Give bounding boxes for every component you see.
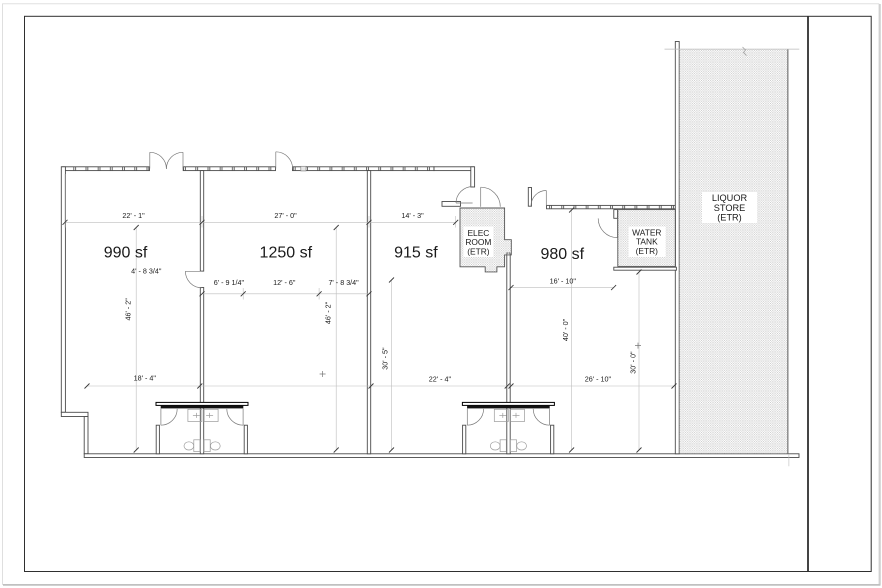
svg-text:LIQUOR: LIQUOR	[712, 193, 748, 203]
svg-text:30' - 0": 30' - 0"	[629, 351, 638, 374]
svg-text:4' - 8 3/4": 4' - 8 3/4"	[131, 267, 162, 276]
svg-text:(ETR): (ETR)	[636, 246, 659, 256]
svg-text:22' - 1": 22' - 1"	[122, 211, 145, 220]
svg-text:26' - 10": 26' - 10"	[585, 375, 612, 384]
svg-text:22' - 4": 22' - 4"	[429, 375, 452, 384]
svg-text:915 sf: 915 sf	[394, 245, 438, 262]
svg-text:30' - 5": 30' - 5"	[380, 347, 389, 370]
svg-text:46' - 2": 46' - 2"	[124, 298, 133, 321]
svg-text:6' - 9 1/4": 6' - 9 1/4"	[214, 278, 245, 287]
svg-text:12' - 6": 12' - 6"	[273, 278, 296, 287]
svg-text:990 sf: 990 sf	[104, 245, 148, 262]
svg-text:(ETR): (ETR)	[467, 247, 490, 257]
svg-text:7' - 8 3/4": 7' - 8 3/4"	[328, 278, 359, 287]
svg-text:18' - 4": 18' - 4"	[134, 374, 157, 383]
svg-text:46' - 2": 46' - 2"	[324, 301, 333, 324]
svg-text:(ETR): (ETR)	[717, 213, 742, 223]
svg-text:1250 sf: 1250 sf	[260, 245, 313, 262]
svg-text:40' - 0": 40' - 0"	[561, 318, 570, 341]
svg-text:980 sf: 980 sf	[541, 246, 585, 263]
svg-text:27' - 0": 27' - 0"	[274, 211, 297, 220]
svg-text:STORE: STORE	[714, 203, 745, 213]
svg-text:14' - 3": 14' - 3"	[401, 211, 424, 220]
svg-text:16' - 10": 16' - 10"	[550, 277, 577, 286]
